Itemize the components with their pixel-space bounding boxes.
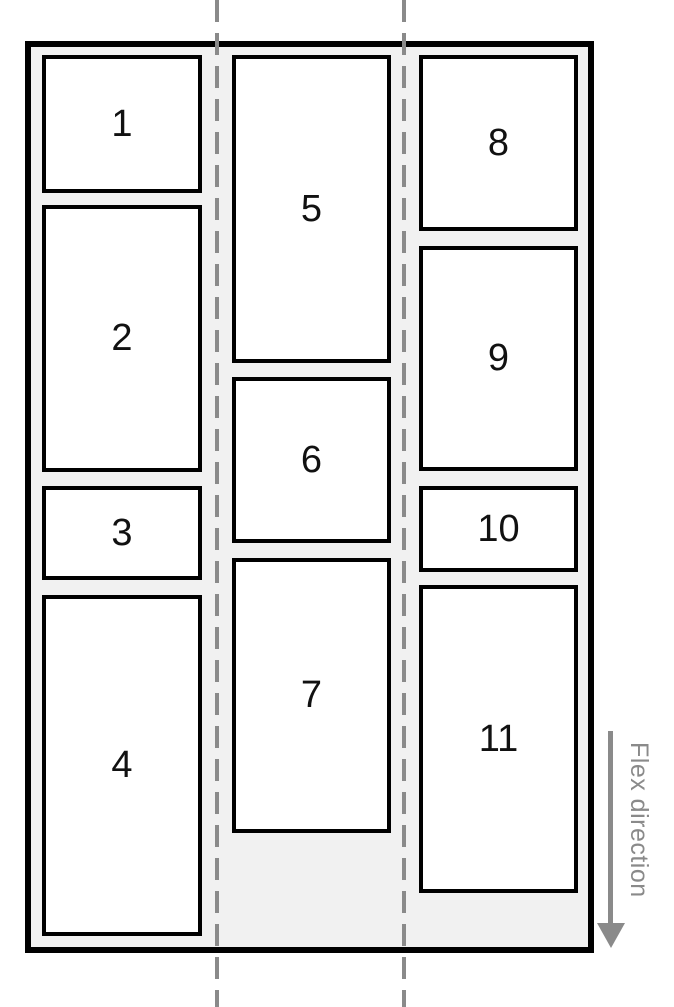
flex-item-9: 9 [419, 246, 578, 471]
flex-item-8-label: 8 [488, 122, 509, 165]
flex-item-7: 7 [232, 558, 391, 833]
flex-item-9-label: 9 [488, 337, 509, 380]
flex-item-7-label: 7 [301, 674, 322, 717]
flex-item-1: 1 [42, 55, 202, 193]
column-boundary-dashed-line-1 [215, 0, 219, 1007]
flex-item-5: 5 [232, 55, 391, 363]
flex-item-6-label: 6 [301, 439, 322, 482]
flex-item-8: 8 [419, 55, 578, 231]
flex-item-4: 4 [42, 595, 202, 936]
flex-item-6: 6 [232, 377, 391, 543]
flex-item-10-label: 10 [477, 508, 519, 551]
flex-item-1-label: 1 [111, 103, 132, 146]
flex-item-11: 11 [419, 585, 578, 893]
column-boundary-dashed-line-2 [402, 0, 406, 1007]
flex-item-10: 10 [419, 486, 578, 572]
flex-item-3: 3 [42, 486, 202, 580]
flex-item-2-label: 2 [111, 317, 132, 360]
flex-direction-label: Flex direction [624, 742, 653, 898]
flex-item-3-label: 3 [111, 512, 132, 555]
flex-item-4-label: 4 [111, 744, 132, 787]
flex-item-11-label: 11 [479, 718, 518, 761]
flexbox-wrap-diagram: 1 2 3 4 5 6 7 8 9 10 11 Flex direction [0, 0, 674, 1007]
flex-item-2: 2 [42, 205, 202, 472]
flex-direction-arrow-shaft [608, 731, 613, 924]
arrow-down-icon [597, 923, 625, 948]
flex-item-5-label: 5 [301, 188, 322, 231]
